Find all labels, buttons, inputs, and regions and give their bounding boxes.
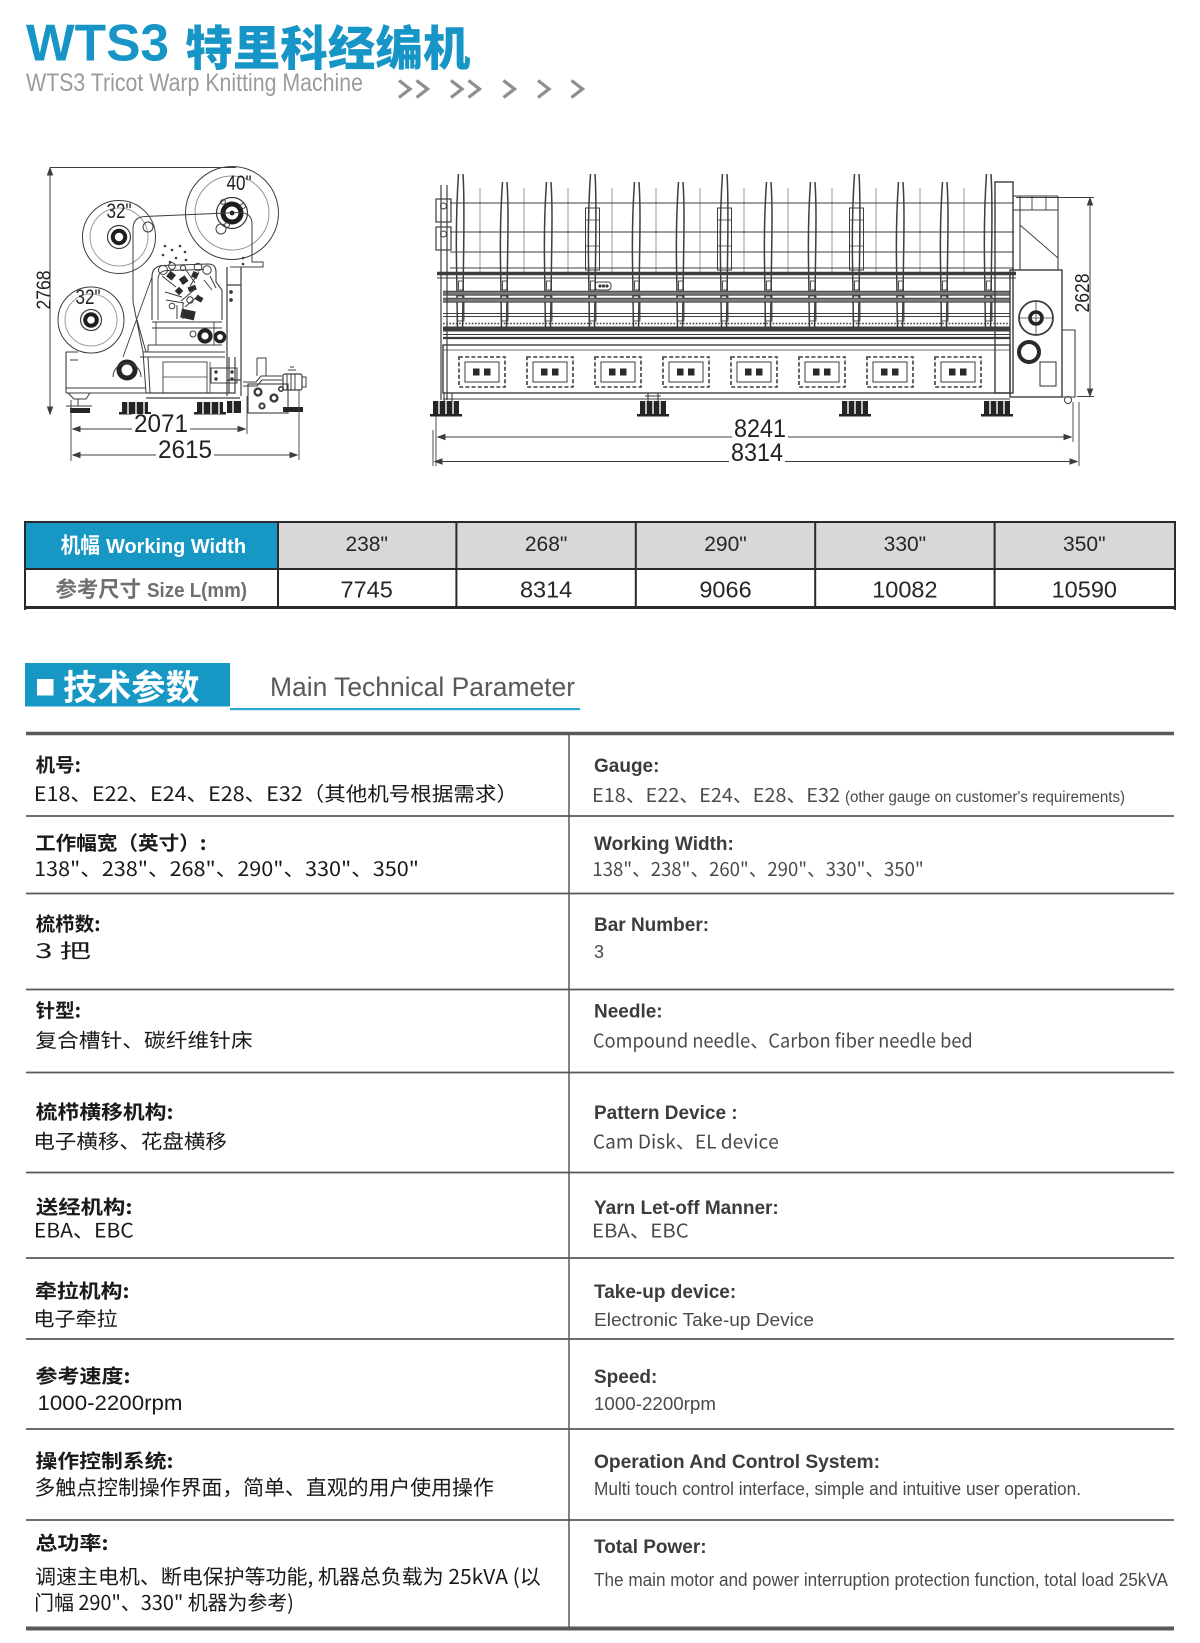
svg-text:2628: 2628 [1072, 274, 1094, 313]
svg-text:Take-up device:: Take-up device: [594, 1282, 736, 1303]
svg-text:Needle:: Needle: [594, 1002, 663, 1023]
svg-text:Working Width: Working Width [106, 536, 246, 558]
svg-text:(other gauge on customer's req: (other gauge on customer's requirements) [845, 789, 1125, 806]
svg-text:Pattern Device :: Pattern Device : [594, 1103, 738, 1124]
svg-text:2768: 2768 [34, 271, 56, 310]
svg-text:1000-2200rpm: 1000-2200rpm [594, 1394, 716, 1414]
svg-text:2071: 2071 [134, 410, 188, 438]
svg-text:Gauge:: Gauge: [594, 756, 659, 777]
svg-text:7745: 7745 [341, 577, 393, 603]
svg-text:Working Width:: Working Width: [594, 834, 734, 855]
svg-text:40": 40" [227, 172, 252, 195]
svg-text:WTS3: WTS3 [26, 14, 169, 72]
svg-text:Size L(mm): Size L(mm) [147, 580, 247, 602]
svg-text:330": 330" [884, 533, 927, 556]
svg-text:32": 32" [107, 200, 132, 223]
svg-text:Bar Number:: Bar Number: [594, 915, 709, 936]
svg-text:268": 268" [525, 533, 568, 556]
svg-text:32": 32" [76, 286, 101, 309]
svg-text:9066: 9066 [699, 577, 751, 603]
svg-text:WTS3 Tricot Warp Knitting Mach: WTS3 Tricot Warp Knitting Machine [26, 69, 363, 97]
svg-text:Main Technical Parameter: Main Technical Parameter [270, 672, 575, 702]
svg-text:Electronic Take-up Device: Electronic Take-up Device [594, 1310, 814, 1330]
svg-text:Yarn Let-off Manner:: Yarn Let-off Manner: [594, 1198, 779, 1219]
svg-text:1000-2200rpm: 1000-2200rpm [38, 1391, 183, 1415]
svg-text:Total Power:: Total Power: [594, 1537, 707, 1558]
svg-text:Multi touch control interface,: Multi touch control interface, simple an… [594, 1479, 1081, 1499]
svg-text:10590: 10590 [1052, 577, 1117, 603]
svg-text:238": 238" [345, 533, 388, 556]
svg-text:3: 3 [594, 942, 604, 962]
svg-text:Operation And Control System:: Operation And Control System: [594, 1452, 880, 1473]
svg-text:10082: 10082 [872, 577, 937, 603]
svg-text:290": 290" [704, 533, 747, 556]
svg-text:8314: 8314 [520, 577, 572, 603]
svg-text:2615: 2615 [158, 436, 212, 464]
svg-text:8314: 8314 [731, 439, 783, 467]
svg-text:350": 350" [1063, 533, 1106, 556]
svg-text:The main motor and power inter: The main motor and power interruption pr… [594, 1570, 1168, 1590]
svg-text:Speed:: Speed: [594, 1367, 657, 1388]
